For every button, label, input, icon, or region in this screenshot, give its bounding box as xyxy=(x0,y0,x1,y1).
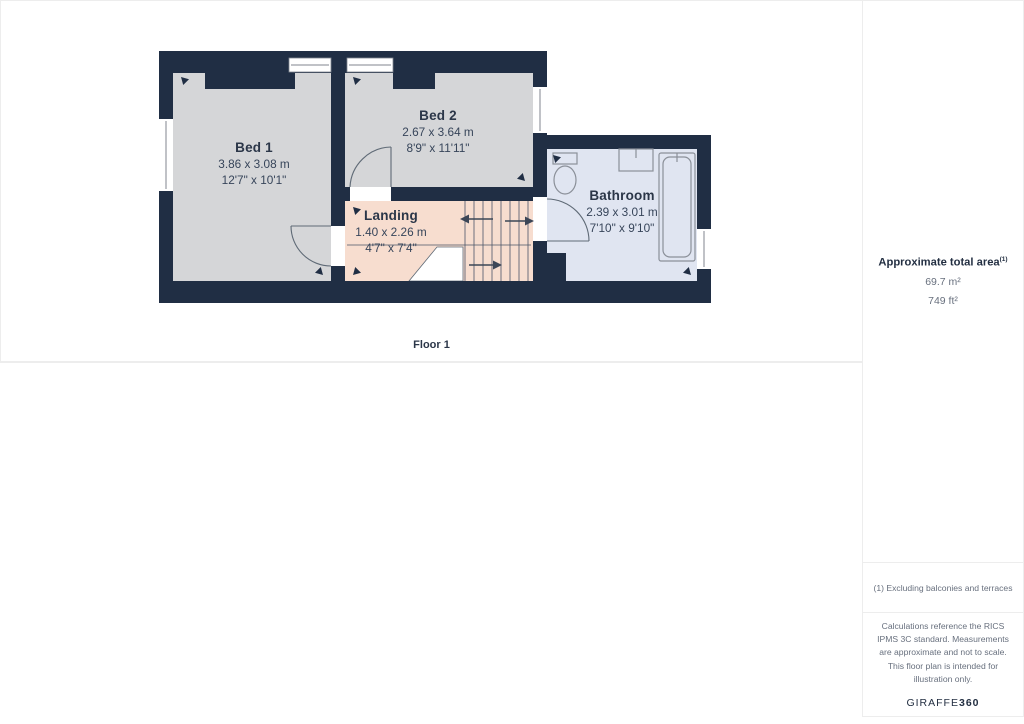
room-dim-imperial: 7'10" x 9'10" xyxy=(586,221,657,237)
footnote-marker: (1) xyxy=(1000,256,1008,263)
disclaimer-text: Calculations reference the RICS IPMS 3C … xyxy=(863,620,1023,687)
room-dim-metric: 3.86 x 3.08 m xyxy=(218,157,289,173)
room-name: Bed 1 xyxy=(218,139,289,157)
room-dim-imperial: 12'7" x 10'1" xyxy=(218,173,289,189)
bed1-label: Bed 1 3.86 x 3.08 m 12'7" x 10'1" xyxy=(218,139,289,189)
room-dim-metric: 2.67 x 3.64 m xyxy=(402,125,473,141)
bed2-label: Bed 2 2.67 x 3.64 m 8'9" x 11'11" xyxy=(402,107,473,157)
total-area-metric: 69.7 m² xyxy=(878,276,1007,288)
room-name: Landing xyxy=(355,207,426,225)
floorplan-page: Lounge 2.85 x 3.09 m 9'4" x 10'1" Dining… xyxy=(0,0,1024,724)
giraffe360-logo: GIRAFFE360 xyxy=(906,697,979,709)
bathroom-label: Bathroom 2.39 x 3.01 m 7'10" x 9'10" xyxy=(586,187,657,237)
sidebar-total-area-section: Approximate total area(1) 69.7 m² 749 ft… xyxy=(862,0,1024,563)
room-dim-imperial: 8'9" x 11'11" xyxy=(402,141,473,157)
room-name: Bathroom xyxy=(586,187,657,205)
total-area-imperial: 749 ft² xyxy=(878,295,1007,307)
room-dim-imperial: 4'7" x 7'4" xyxy=(355,241,426,257)
room-name: Bed 2 xyxy=(402,107,473,125)
total-area-title: Approximate total area(1) xyxy=(878,256,1007,269)
total-area-block: Approximate total area(1) 69.7 m² 749 ft… xyxy=(878,256,1007,307)
footnote-text: (1) Excluding balconies and terraces xyxy=(873,583,1012,593)
room-dim-metric: 1.40 x 2.26 m xyxy=(355,225,426,241)
floor-1-panel: Bed 1 3.86 x 3.08 m 12'7" x 10'1" Bed 2 … xyxy=(0,0,863,362)
sidebar-legal-section: Calculations reference the RICS IPMS 3C … xyxy=(862,612,1024,717)
room-dim-metric: 2.39 x 3.01 m xyxy=(586,205,657,221)
sidebar-footnote-section: (1) Excluding balconies and terraces xyxy=(862,562,1024,613)
floor-1-caption: Floor 1 xyxy=(413,339,450,351)
floor-1-plan xyxy=(1,1,862,361)
landing-label: Landing 1.40 x 2.26 m 4'7" x 7'4" xyxy=(355,207,426,257)
